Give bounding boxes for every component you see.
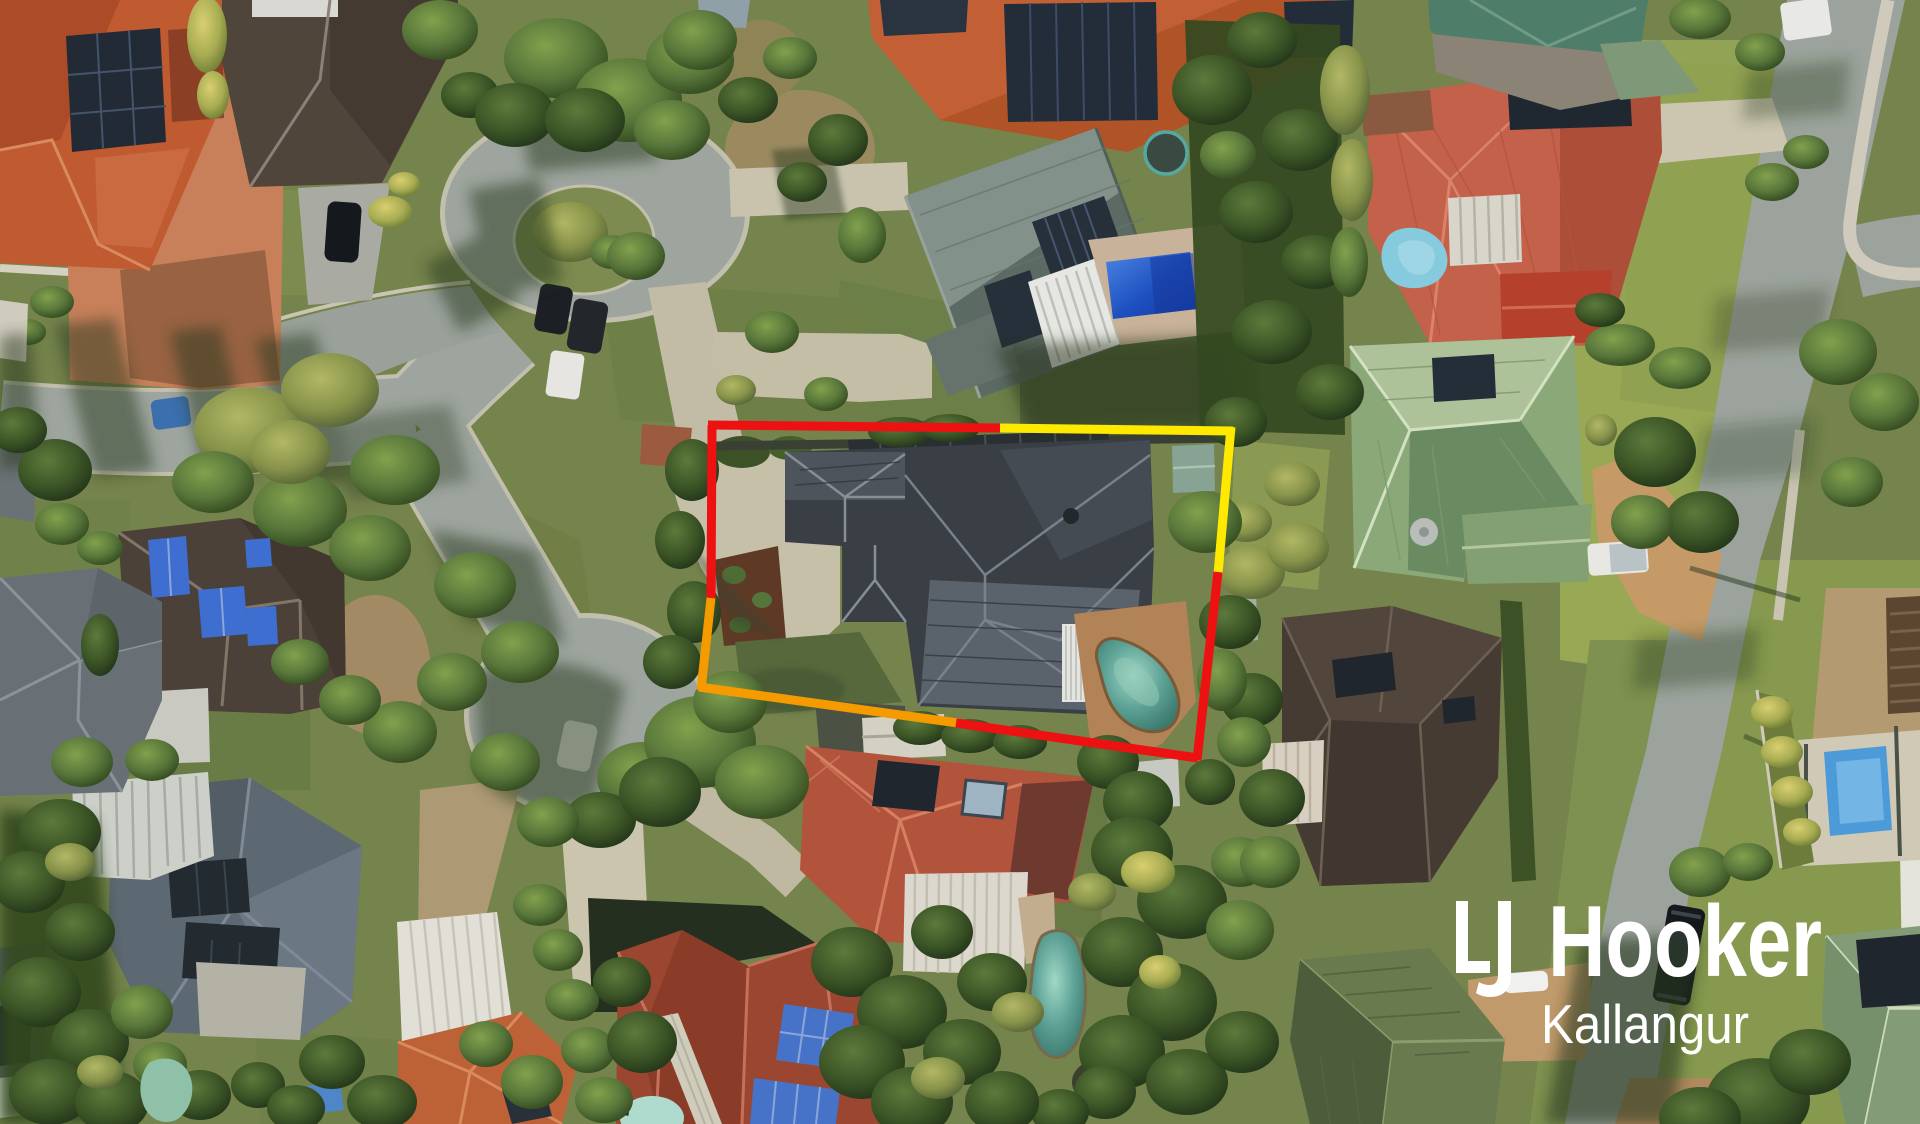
svg-text:Hooker: Hooker (1548, 886, 1822, 998)
svg-text:Kallangur: Kallangur (1541, 993, 1749, 1055)
